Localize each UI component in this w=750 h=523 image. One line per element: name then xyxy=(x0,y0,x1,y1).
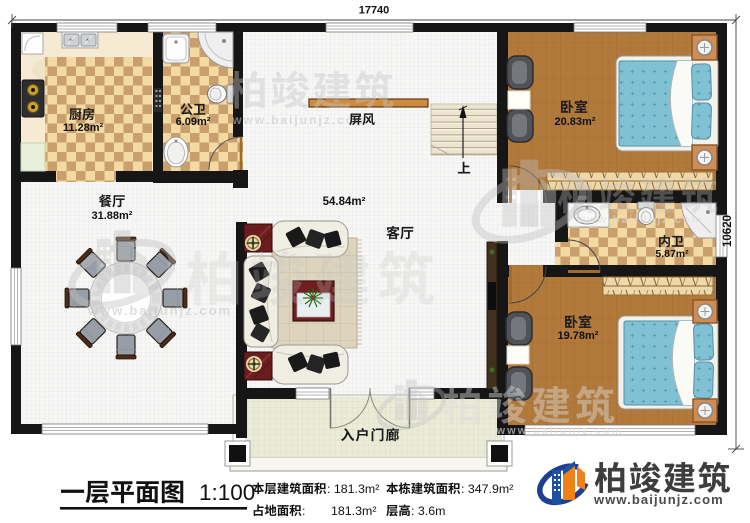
svg-text:11.28m²: 11.28m² xyxy=(63,122,104,134)
svg-text:1:100: 1:100 xyxy=(199,480,255,505)
svg-text:www.baijunjz.com: www.baijunjz.com xyxy=(231,113,368,127)
svg-text:www.baijunjz.com: www.baijunjz.com xyxy=(496,425,624,437)
svg-text:54.84m²: 54.84m² xyxy=(323,196,366,208)
svg-text:www.baijunjz.com: www.baijunjz.com xyxy=(576,214,704,226)
svg-text:20.83m²: 20.83m² xyxy=(555,116,596,128)
svg-text:19.78m²: 19.78m² xyxy=(558,330,599,342)
svg-text:17740: 17740 xyxy=(359,5,390,17)
svg-text:6.09m²: 6.09m² xyxy=(176,116,211,128)
svg-text:181.3m²: 181.3m² xyxy=(331,504,376,518)
svg-text:: 181.3m²: : 181.3m² xyxy=(327,482,379,496)
svg-text:10620: 10620 xyxy=(722,215,734,247)
svg-text:www.baijunjz.com: www.baijunjz.com xyxy=(593,492,724,507)
svg-text:: 347.9m²: : 347.9m² xyxy=(461,482,513,496)
svg-text:: 3.6m: : 3.6m xyxy=(411,504,445,518)
svg-text::: : xyxy=(302,504,305,518)
svg-text:5.87m²: 5.87m² xyxy=(655,248,689,260)
svg-text:31.88m²: 31.88m² xyxy=(92,210,133,222)
